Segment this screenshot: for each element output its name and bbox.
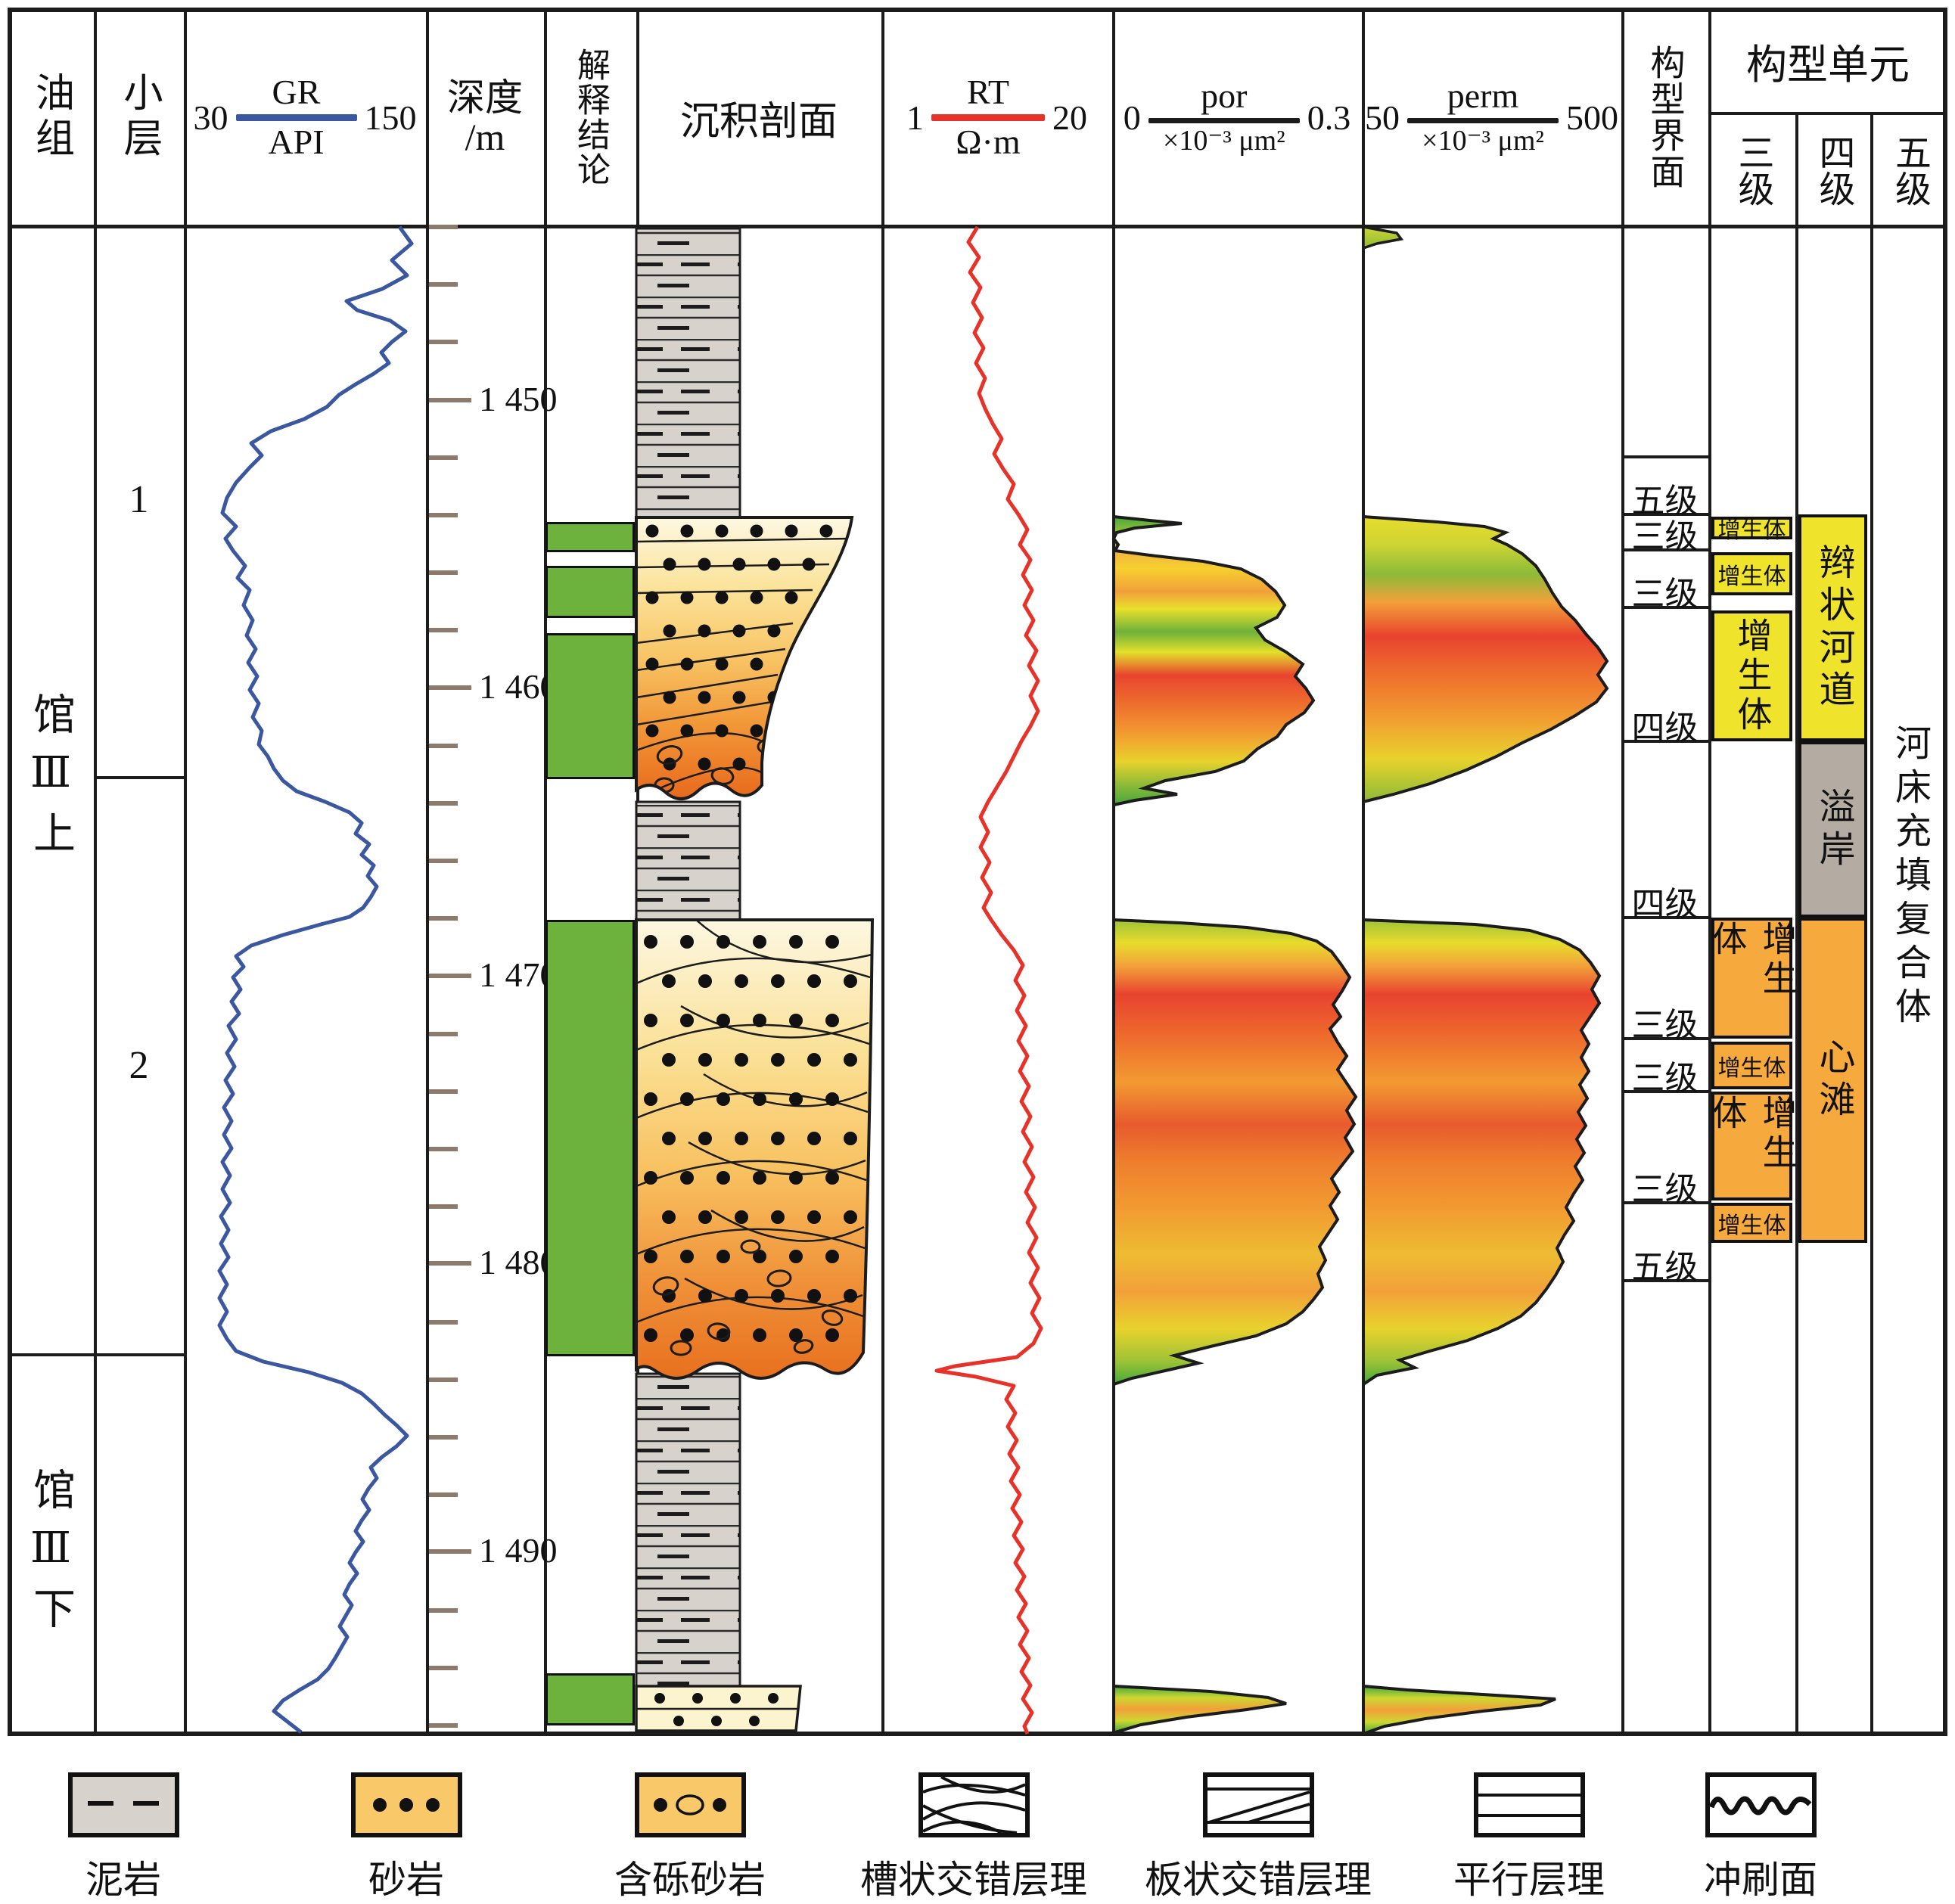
accretion-box: 增生体 <box>1711 610 1792 741</box>
divider <box>881 8 884 1736</box>
header-iface: 构型界面 <box>1621 8 1708 227</box>
accretion-box: 增生体 <box>1711 1042 1792 1089</box>
header-iface-label: 构型界面 <box>1640 45 1690 190</box>
divider <box>1621 8 1624 1736</box>
iface-line <box>1624 455 1708 458</box>
parallel-swatch <box>1474 1772 1585 1837</box>
header-oil-group: 油组 <box>8 8 94 227</box>
gr-min: 30 <box>194 98 228 138</box>
divider <box>1112 8 1115 1736</box>
depth-tick-minor <box>429 1089 458 1094</box>
interp-sand-box <box>545 920 635 1356</box>
depth-tick-minor <box>429 340 458 344</box>
legend-label: 板状交错层理 <box>1145 1850 1372 1904</box>
sandstone-swatch <box>351 1772 462 1837</box>
header-arch5: 五级 <box>1870 113 1947 227</box>
oil-group-guan3-upper: 馆Ⅲ上 <box>8 666 94 893</box>
divider <box>426 8 429 1736</box>
depth-tick-labeled <box>429 974 471 978</box>
iface-label: 三级 <box>1621 998 1708 1046</box>
arch4-box: 溢岸 <box>1798 741 1867 918</box>
sublayer-2-label: 2 <box>94 1042 184 1088</box>
accretion-label: 增生体 <box>1718 1049 1786 1082</box>
header-sublayer-label: 小层 <box>110 72 167 163</box>
depth-tick-minor <box>429 225 458 229</box>
arch4-label: 心滩 <box>1807 1038 1860 1123</box>
header-sed-label: 沉积剖面 <box>680 89 838 146</box>
header-por-track: 0 por ×10⁻³ μm² 0.3 <box>1112 8 1362 227</box>
depth-tick-minor <box>429 628 458 632</box>
divider <box>1362 8 1365 1736</box>
rt-name: RT <box>967 74 1009 110</box>
por-name: por <box>1201 78 1247 114</box>
interp-sand-box <box>545 522 635 552</box>
iface-label: 三级 <box>1621 1051 1708 1099</box>
well-log-figure: 油组 小层 30 GR API 150 深度 /m 解释结论 沉积剖面 1 RT… <box>0 0 1955 1896</box>
sublayer-number: 2 <box>129 1043 149 1088</box>
accretion-box: 增生体 <box>1711 918 1792 1039</box>
oil-group-guan3-lower: 馆Ⅲ下 <box>8 1441 94 1668</box>
interp-sand-box <box>545 566 635 618</box>
perm-sample-line <box>1407 118 1559 123</box>
depth-name: 深度 <box>447 78 523 118</box>
sublayer-number: 1 <box>129 477 149 522</box>
depth-label: 1 450 <box>479 379 558 419</box>
perm-min: 50 <box>1365 98 1400 138</box>
depth-label: 1 490 <box>479 1530 558 1570</box>
iface-label: 三级 <box>1621 567 1708 615</box>
gr-max: 150 <box>365 98 417 138</box>
oil-group-label: 馆Ⅲ下 <box>20 1468 82 1642</box>
arch5-channel-fill-complex: 河床充填复合体 <box>1870 681 1947 1074</box>
depth-tick-minor <box>429 1320 458 1325</box>
accretion-box: 增生体 <box>1711 552 1792 595</box>
header-sublayer: 小层 <box>94 8 184 227</box>
sublayer-divider <box>94 776 184 779</box>
iface-label: 五级 <box>1621 1240 1708 1288</box>
planar-swatch <box>1203 1772 1314 1837</box>
accretion-label: 增生体 <box>1702 1095 1802 1197</box>
accretion-label: 增生体 <box>1702 921 1802 1036</box>
legend-label: 冲刷面 <box>1704 1850 1817 1904</box>
accretion-label: 增生体 <box>1718 1207 1786 1240</box>
depth-tick-minor <box>429 570 458 575</box>
header-sed-profile: 沉积剖面 <box>636 8 881 227</box>
divider <box>94 8 97 1736</box>
arch4-label: 辫状河道 <box>1807 543 1860 713</box>
oil-group-label: 馆Ⅲ上 <box>20 692 82 867</box>
por-min: 0 <box>1124 98 1141 138</box>
accretion-box: 增生体 <box>1711 1092 1792 1200</box>
legend-label: 平行层理 <box>1453 1850 1605 1904</box>
legend-label: 含砾砂岩 <box>614 1850 766 1904</box>
rt-max: 20 <box>1052 98 1087 138</box>
depth-tick-labeled <box>429 398 471 402</box>
depth-tick-minor <box>429 1147 458 1151</box>
header-interp-label: 解释结论 <box>566 48 614 187</box>
oil-group-divider <box>8 1353 184 1356</box>
interp-sand-box <box>545 1673 635 1725</box>
depth-tick-minor <box>429 1204 458 1209</box>
table-frame <box>8 8 1947 1736</box>
rt-sample-line <box>931 114 1045 121</box>
iface-label: 四级 <box>1621 700 1708 749</box>
depth-tick-minor <box>429 1435 458 1440</box>
depth-tick-minor <box>429 1378 458 1382</box>
depth-tick-minor <box>429 1666 458 1670</box>
header-arch5-label: 五级 <box>1882 134 1935 207</box>
arch4-box: 心滩 <box>1798 918 1867 1243</box>
header-arch4: 四级 <box>1795 113 1870 227</box>
gr-name: GR <box>272 74 321 110</box>
depth-tick-minor <box>429 916 458 921</box>
depth-tick-labeled <box>429 1261 471 1266</box>
depth-tick-labeled <box>429 685 471 690</box>
depth-unit: /m <box>465 117 505 157</box>
perm-unit: ×10⁻³ μm² <box>1422 126 1544 157</box>
header-gr-track: 30 GR API 150 <box>184 8 426 227</box>
header-depth: 深度 /m <box>426 8 544 227</box>
rt-min: 1 <box>906 98 924 138</box>
legend-label: 泥岩 <box>85 1850 161 1904</box>
gr-sample-line <box>236 114 357 121</box>
perm-max: 500 <box>1566 98 1618 138</box>
por-sample-line <box>1148 118 1300 123</box>
interp-sand-box <box>545 633 635 779</box>
pebbly-swatch <box>635 1772 746 1837</box>
iface-label: 四级 <box>1621 877 1708 925</box>
legend-item-planar: 板状交错层理 <box>1137 1772 1379 1904</box>
header-interp: 解释结论 <box>544 8 636 227</box>
accretion-box: 增生体 <box>1711 517 1792 539</box>
divider <box>636 8 639 1736</box>
depth-tick-minor <box>429 859 458 863</box>
depth-tick-minor <box>429 455 458 460</box>
depth-tick-minor <box>429 1723 458 1728</box>
iface-label: 三级 <box>1621 1162 1708 1210</box>
mudstone-swatch <box>68 1772 179 1837</box>
trough-swatch <box>918 1772 1030 1837</box>
depth-tick-minor <box>429 1032 458 1036</box>
accretion-label: 增生体 <box>1718 558 1786 591</box>
depth-tick-minor <box>429 744 458 748</box>
por-max: 0.3 <box>1307 98 1351 138</box>
header-arch3: 三级 <box>1708 113 1795 227</box>
iface-label: 三级 <box>1621 509 1708 558</box>
perm-name: perm <box>1447 78 1519 114</box>
accretion-box: 增生体 <box>1711 1203 1792 1243</box>
legend-item-mudstone: 泥岩 <box>2 1772 244 1904</box>
accretion-label: 增生体 <box>1727 617 1777 735</box>
divider <box>544 8 547 1736</box>
depth-tick-minor <box>429 513 458 517</box>
legend-item-trough: 槽状交错层理 <box>853 1772 1095 1904</box>
arch4-box: 辫状河道 <box>1798 514 1867 741</box>
header-arch-unit: 构型单元 <box>1708 8 1947 113</box>
por-unit: ×10⁻³ μm² <box>1163 126 1285 157</box>
legend-item-scour: 冲刷面 <box>1640 1772 1882 1904</box>
header-arch-unit-label: 构型单元 <box>1746 31 1910 91</box>
divider <box>184 8 187 1736</box>
depth-tick-labeled <box>429 1549 471 1554</box>
scour-swatch <box>1705 1772 1817 1837</box>
accretion-label: 增生体 <box>1718 511 1786 545</box>
depth-tick-minor <box>429 1608 458 1613</box>
legend-item-parallel: 平行层理 <box>1408 1772 1650 1904</box>
legend-label: 砂岩 <box>368 1850 444 1904</box>
legend-label: 槽状交错层理 <box>860 1850 1087 1904</box>
arch4-label: 溢岸 <box>1807 787 1860 872</box>
sublayer-1-label: 1 <box>94 477 184 522</box>
rt-unit: Ω·m <box>956 124 1020 160</box>
legend-item-pebbly: 含砾砂岩 <box>569 1772 811 1904</box>
depth-tick-minor <box>429 801 458 806</box>
header-arch3-label: 三级 <box>1726 134 1779 207</box>
arch5-text: 河床充填复合体 <box>1882 724 1935 1031</box>
header-oil-group-label: 油组 <box>23 72 79 163</box>
divider <box>1708 8 1711 1736</box>
legend-item-sandstone: 砂岩 <box>285 1772 527 1904</box>
header-perm-track: 50 perm ×10⁻³ μm² 500 <box>1362 8 1621 227</box>
header-arch4-label: 四级 <box>1807 134 1860 207</box>
gr-unit: API <box>268 124 324 160</box>
depth-tick-minor <box>429 282 458 287</box>
header-rt-track: 1 RT Ω·m 20 <box>881 8 1112 227</box>
depth-tick-minor <box>429 1492 458 1497</box>
